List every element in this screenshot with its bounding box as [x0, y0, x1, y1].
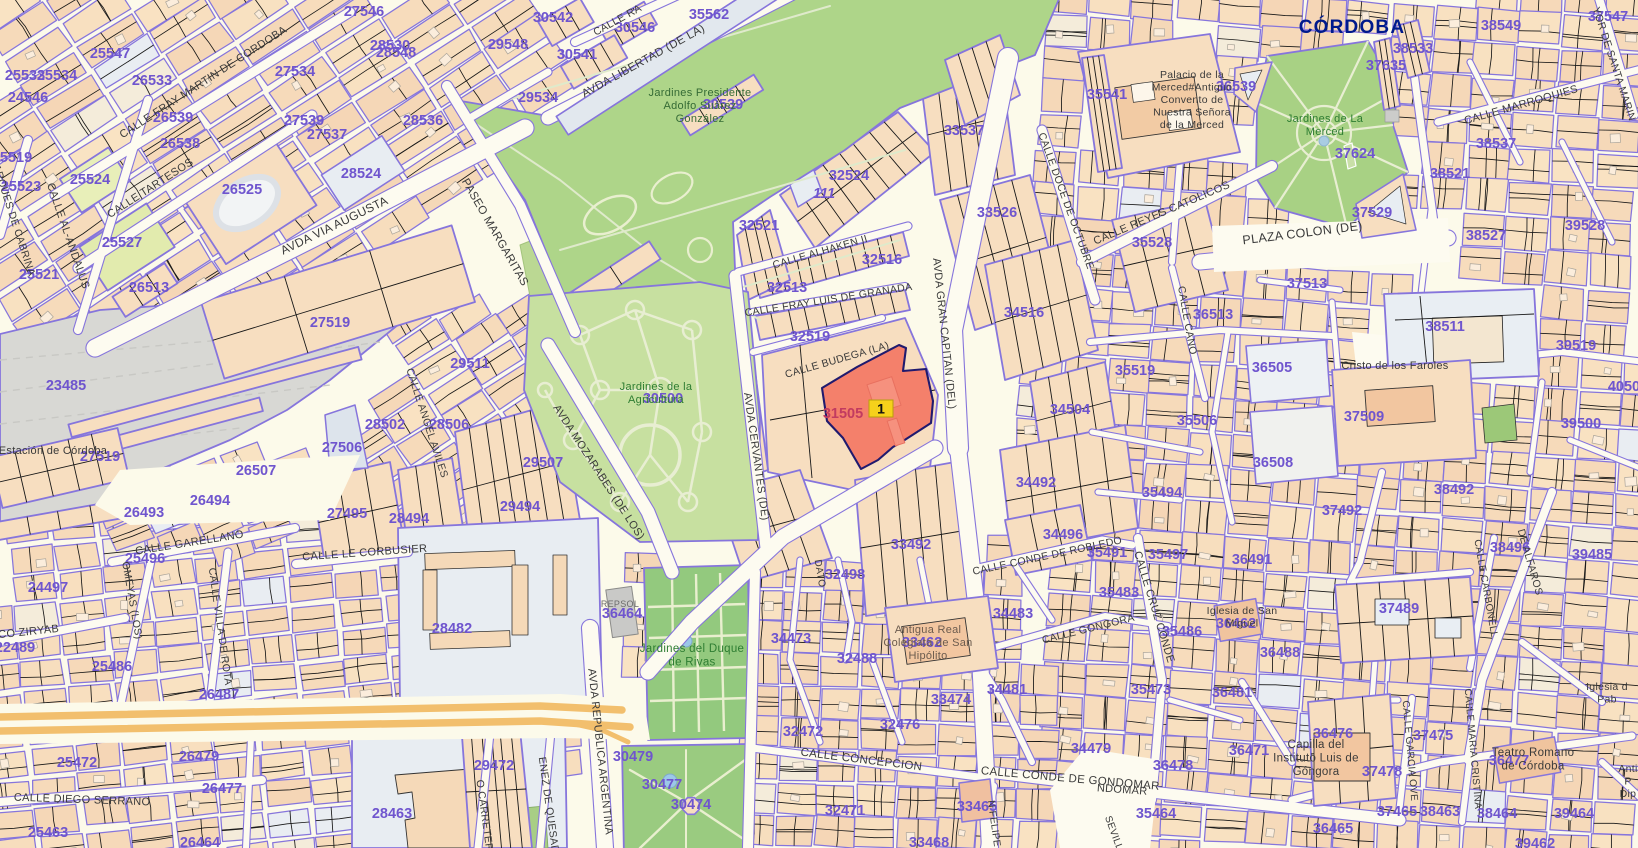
svg-text:32513: 32513 [767, 280, 807, 296]
svg-text:36478: 36478 [1153, 758, 1193, 774]
svg-text:35541: 35541 [1087, 87, 1127, 103]
svg-text:25547: 25547 [90, 46, 130, 62]
svg-text:36491: 36491 [1232, 552, 1272, 568]
svg-text:25519: 25519 [0, 150, 32, 166]
svg-text:36465: 36465 [1313, 821, 1353, 837]
svg-text:35562: 35562 [689, 7, 729, 23]
svg-text:27506: 27506 [322, 440, 362, 456]
svg-text:25534: 25534 [37, 68, 77, 84]
svg-text:26494: 26494 [190, 493, 230, 509]
svg-text:28524: 28524 [341, 166, 381, 182]
svg-text:32524: 32524 [829, 168, 869, 184]
svg-text:29472: 29472 [474, 758, 514, 774]
svg-text:37465: 37465 [1377, 804, 1417, 820]
svg-text:24546: 24546 [8, 90, 48, 106]
svg-text:27495: 27495 [327, 506, 367, 522]
svg-text:Agricultura: Agricultura [628, 394, 684, 406]
svg-text:37513: 37513 [1287, 276, 1327, 292]
svg-text:111: 111 [813, 186, 835, 202]
svg-text:P: P [1624, 776, 1631, 788]
svg-text:33526: 33526 [977, 205, 1017, 221]
svg-text:31505: 31505 [823, 406, 863, 422]
svg-text:38537: 38537 [1476, 136, 1516, 152]
svg-text:38492: 38492 [1434, 482, 1474, 498]
svg-text:29507: 29507 [523, 455, 563, 471]
svg-text:Teatro Romano: Teatro Romano [1492, 747, 1575, 759]
svg-text:32516: 32516 [862, 252, 902, 268]
svg-text:Pab: Pab [1597, 694, 1617, 706]
svg-text:34483: 34483 [993, 606, 1033, 622]
svg-text:1: 1 [877, 401, 885, 417]
svg-text:34492: 34492 [1016, 475, 1056, 491]
svg-text:34481: 34481 [987, 682, 1027, 698]
svg-text:Capilla del: Capilla del [1288, 739, 1345, 751]
svg-text:Instituto Luis de: Instituto Luis de [1273, 753, 1359, 765]
svg-text:38463: 38463 [1420, 804, 1460, 820]
svg-text:37475: 37475 [1413, 728, 1453, 744]
svg-text:34473: 34473 [771, 631, 811, 647]
svg-text:25486: 25486 [92, 659, 132, 675]
svg-text:Cristo de los Faroles: Cristo de los Faroles [1341, 360, 1448, 372]
svg-text:39485: 39485 [1572, 547, 1612, 563]
svg-text:Merced: Merced [1306, 126, 1344, 138]
svg-text:32488: 32488 [837, 651, 877, 667]
svg-text:Dip: Dip [1620, 788, 1637, 800]
svg-text:26479: 26479 [179, 749, 219, 765]
svg-text:32521: 32521 [739, 218, 779, 234]
svg-text:32498: 32498 [825, 567, 865, 583]
svg-text:32471: 32471 [825, 803, 865, 819]
svg-text:25524: 25524 [70, 172, 110, 188]
svg-text:Hipólito: Hipólito [908, 650, 947, 662]
svg-text:34496: 34496 [1043, 527, 1083, 543]
svg-text:23485: 23485 [46, 378, 86, 394]
svg-text:34516: 34516 [1004, 305, 1044, 321]
svg-text:29548: 29548 [488, 37, 528, 53]
svg-text:30479: 30479 [613, 749, 653, 765]
svg-text:25527: 25527 [102, 235, 142, 251]
svg-text:38533: 38533 [1393, 41, 1433, 57]
svg-text:Góngora: Góngora [1293, 766, 1340, 778]
svg-text:27537: 27537 [307, 127, 347, 143]
svg-text:39519: 39519 [1556, 338, 1596, 354]
svg-text:Jardines de la: Jardines de la [620, 381, 693, 393]
svg-text:González: González [676, 113, 725, 125]
svg-text:35497: 35497 [1148, 547, 1188, 563]
svg-text:35494: 35494 [1142, 485, 1182, 501]
svg-text:28536: 28536 [403, 113, 443, 129]
svg-text:25472: 25472 [57, 755, 97, 771]
svg-text:Miguel: Miguel [1226, 618, 1259, 630]
svg-text:29494: 29494 [500, 499, 540, 515]
svg-text:32476: 32476 [880, 717, 920, 733]
svg-text:36488: 36488 [1260, 645, 1300, 661]
svg-text:37478: 37478 [1362, 764, 1402, 780]
svg-text:38549: 38549 [1481, 18, 1521, 34]
svg-text:Merced#Antiguo: Merced#Antiguo [1152, 82, 1233, 94]
svg-text:33474: 33474 [931, 692, 971, 708]
svg-text:Colegiata de San: Colegiata de San [883, 637, 972, 649]
svg-text:de Córdoba: de Córdoba [1501, 761, 1564, 773]
svg-text:28482: 28482 [432, 621, 472, 637]
svg-text:39462: 39462 [1515, 836, 1555, 848]
svg-text:27519: 27519 [310, 315, 350, 331]
svg-text:35473: 35473 [1131, 682, 1171, 698]
svg-text:28502: 28502 [365, 417, 405, 433]
svg-text:de la Merced: de la Merced [1160, 119, 1224, 131]
svg-text:26513: 26513 [129, 280, 169, 296]
svg-text:Jardines del Duque: Jardines del Duque [640, 643, 745, 655]
svg-text:30477: 30477 [642, 777, 682, 793]
svg-text:30474: 30474 [671, 797, 711, 813]
svg-text:25463: 25463 [28, 825, 68, 841]
svg-text:Antigua Real: Antigua Real [895, 624, 962, 636]
svg-text:Jardines de La: Jardines de La [1287, 113, 1364, 125]
svg-text:39464: 39464 [1554, 806, 1594, 822]
svg-text:33468: 33468 [909, 835, 949, 848]
svg-text:27534: 27534 [275, 64, 315, 80]
svg-text:29534: 29534 [518, 90, 558, 106]
svg-text:26493: 26493 [124, 505, 164, 521]
svg-text:Iglesia de San: Iglesia de San [1207, 605, 1278, 617]
svg-text:28463: 28463 [372, 806, 412, 822]
svg-text:33492: 33492 [891, 537, 931, 553]
svg-text:36508: 36508 [1253, 455, 1293, 471]
svg-text:Jardines Presidente: Jardines Presidente [649, 87, 752, 99]
svg-text:26525: 26525 [222, 182, 262, 198]
svg-text:33537: 33537 [944, 123, 984, 139]
svg-text:36471: 36471 [1229, 743, 1269, 759]
svg-text:37489: 37489 [1379, 601, 1419, 617]
svg-text:29511: 29511 [450, 356, 490, 372]
svg-text:40500: 40500 [1608, 379, 1638, 395]
svg-text:32519: 32519 [790, 329, 830, 345]
svg-text:28494: 28494 [389, 511, 429, 527]
svg-text:38511: 38511 [1425, 319, 1465, 335]
svg-text:32472: 32472 [783, 724, 823, 740]
svg-text:35519: 35519 [1115, 363, 1155, 379]
svg-text:Estación de Córdoba: Estación de Córdoba [0, 445, 108, 457]
svg-text:30541: 30541 [557, 47, 597, 63]
svg-text:34479: 34479 [1071, 741, 1111, 757]
svg-text:38521: 38521 [1430, 166, 1470, 182]
svg-text:36505: 36505 [1252, 360, 1292, 376]
svg-text:Convento de: Convento de [1161, 94, 1224, 106]
svg-text:36481: 36481 [1212, 685, 1252, 701]
svg-text:26487: 26487 [199, 687, 239, 703]
svg-text:38527: 38527 [1466, 228, 1506, 244]
svg-text:26464: 26464 [180, 835, 220, 848]
svg-text:Nuestra Señora: Nuestra Señora [1153, 107, 1231, 119]
svg-text:37635: 37635 [1366, 58, 1406, 74]
svg-text:26533: 26533 [132, 73, 172, 89]
svg-text:28530: 28530 [370, 38, 410, 54]
svg-text:39528: 39528 [1565, 218, 1605, 234]
svg-text:26538: 26538 [160, 136, 200, 152]
svg-text:35464: 35464 [1136, 806, 1176, 822]
svg-text:Adolfo Suárez: Adolfo Suárez [664, 100, 737, 112]
svg-text:26477: 26477 [202, 781, 242, 797]
svg-text:35528: 35528 [1132, 235, 1172, 251]
svg-text:37624: 37624 [1335, 146, 1375, 162]
svg-text:REPSOL: REPSOL [601, 599, 639, 609]
svg-text:34504: 34504 [1050, 402, 1090, 418]
svg-text:35506: 35506 [1177, 413, 1217, 429]
svg-text:Palacio de la: Palacio de la [1160, 69, 1224, 81]
svg-text:37509: 37509 [1344, 409, 1384, 425]
svg-text:CÓRDOBA: CÓRDOBA [1299, 16, 1406, 38]
svg-text:Anti: Anti [1618, 763, 1637, 775]
svg-text:27546: 27546 [344, 4, 384, 20]
svg-text:22489: 22489 [0, 640, 35, 656]
svg-text:de Rivas: de Rivas [668, 657, 715, 669]
svg-text:35483: 35483 [1099, 585, 1139, 601]
svg-text:24497: 24497 [28, 580, 68, 596]
svg-text:30542: 30542 [533, 10, 573, 26]
svg-text:36513: 36513 [1193, 307, 1233, 323]
svg-text:39500: 39500 [1561, 416, 1601, 432]
svg-text:Iglesia d: Iglesia d [1586, 681, 1628, 693]
svg-text:26507: 26507 [236, 463, 276, 479]
svg-text:37492: 37492 [1322, 503, 1362, 519]
